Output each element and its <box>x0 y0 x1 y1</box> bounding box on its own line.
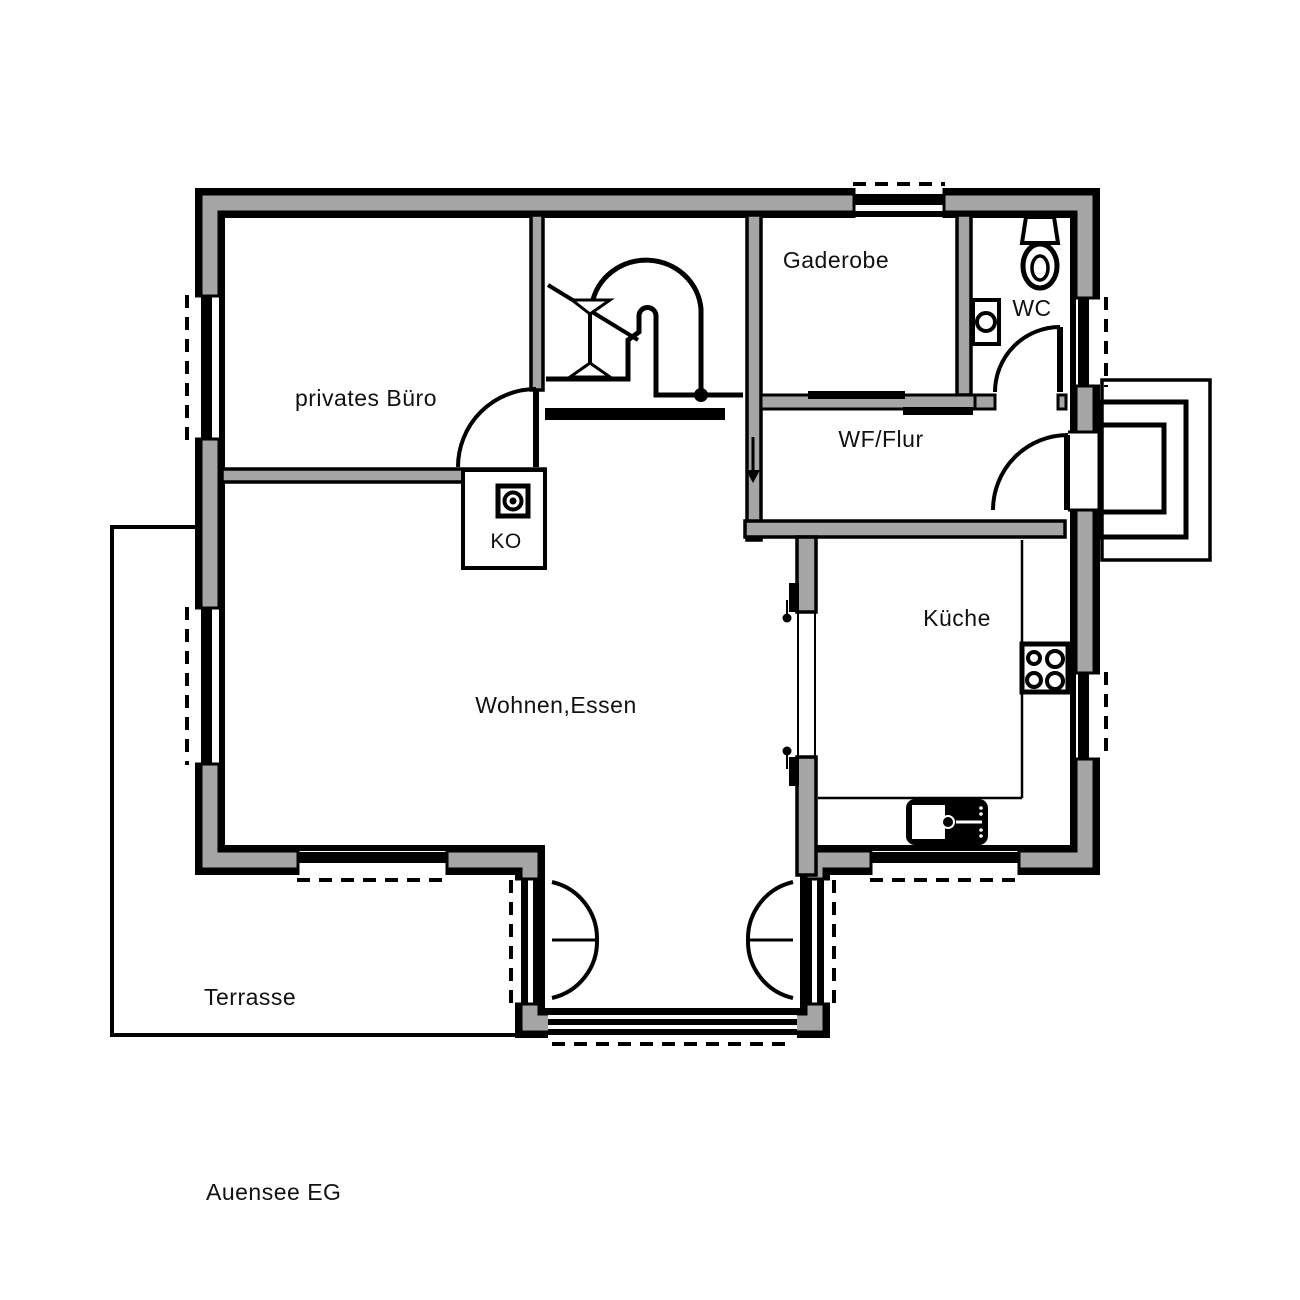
label-ko: KO <box>490 530 521 553</box>
entrance-steps <box>1100 380 1210 560</box>
plan-title: Auensee EG <box>206 1179 341 1205</box>
bay-window-right <box>800 878 834 1005</box>
window-kueche-bottom <box>870 845 1020 880</box>
label-wc: WC <box>1012 295 1051 321</box>
hand-basin-icon <box>973 300 999 344</box>
bay-sliding-door <box>548 1005 797 1044</box>
bay-window-left <box>511 878 545 1005</box>
window-kueche-right <box>1070 672 1106 760</box>
label-wohnen: Wohnen,Essen <box>475 692 637 718</box>
label-terrasse: Terrasse <box>204 984 296 1010</box>
window-wc-right <box>1070 297 1106 387</box>
label-flur: WF/Flur <box>838 426 923 452</box>
window-wohnen-bottom <box>297 845 448 880</box>
window-garderobe-top <box>853 184 945 218</box>
kitchen-sink-icon <box>906 799 988 845</box>
floor-plan: privates Büro Gaderobe WC WF/Flur KO Küc… <box>0 0 1300 1300</box>
floor-plan-page: privates Büro Gaderobe WC WF/Flur KO Küc… <box>0 0 1300 1300</box>
window-buero-left <box>187 295 225 440</box>
ko-nook <box>463 470 545 568</box>
label-buero: privates Büro <box>295 385 437 411</box>
chimney-icon <box>498 486 528 516</box>
label-kueche: Küche <box>923 605 991 631</box>
stove-icon <box>1022 644 1068 692</box>
label-garderobe: Gaderobe <box>783 247 889 273</box>
toilet-icon <box>1022 217 1058 288</box>
